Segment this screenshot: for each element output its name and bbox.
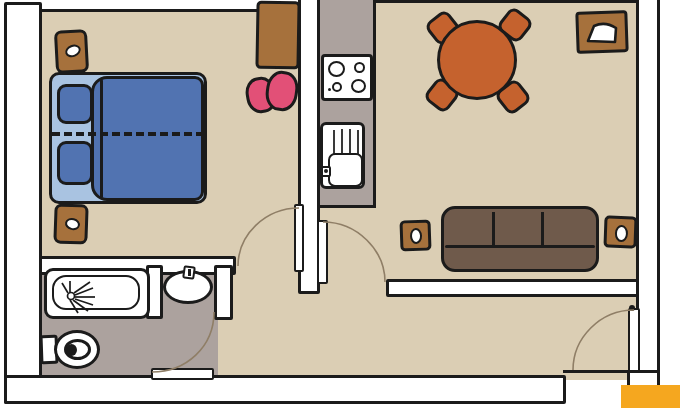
living-hall-wall xyxy=(386,279,640,297)
dresser xyxy=(255,1,300,70)
side-table-right xyxy=(603,215,637,248)
drainer-line xyxy=(349,129,351,156)
bed-pillow-top xyxy=(57,84,93,124)
bed-center-dashed-line xyxy=(52,132,204,136)
bathtub-inner-rim xyxy=(52,275,140,310)
outer-wall-left xyxy=(4,2,42,404)
bed-pillow-bottom xyxy=(57,141,93,185)
sofa xyxy=(441,206,599,272)
nightstand-lamp-icon xyxy=(64,216,81,231)
bedroom-door-leaf xyxy=(294,204,304,272)
bed-blanket-fold xyxy=(100,79,103,198)
floor-plan xyxy=(0,0,680,408)
kitchen-sink-unit xyxy=(320,122,365,189)
faucet-dot xyxy=(324,169,328,173)
lamp-icon xyxy=(410,228,423,244)
drainer-line xyxy=(341,129,343,156)
hall-living-door-leaf xyxy=(317,220,328,284)
sink-basin xyxy=(328,153,363,187)
drainer-line xyxy=(357,130,359,156)
toilet-bowl-shadow xyxy=(66,344,77,356)
stove xyxy=(321,54,373,101)
dining-top-edge xyxy=(376,0,638,3)
entry-door-leaf xyxy=(628,308,640,372)
basin-faucet-tick xyxy=(188,269,191,276)
nightstand-top xyxy=(54,29,89,74)
sofa-cushion-line xyxy=(492,212,495,246)
toilet-bowl xyxy=(54,330,100,369)
lamp-icon xyxy=(615,225,629,242)
nightstand-lamp-icon xyxy=(63,42,82,59)
pet-bowl-mat xyxy=(575,10,628,54)
outer-wall-bottom xyxy=(4,375,566,404)
bathroom-right-wall xyxy=(214,265,233,320)
burner-icon xyxy=(328,61,345,77)
burner-icon xyxy=(351,79,366,93)
entry-door-hinge-dot xyxy=(629,305,635,311)
sofa-seat-line xyxy=(445,245,595,248)
nightstand-bottom xyxy=(53,203,88,244)
dining-table xyxy=(437,20,517,100)
brand-corner-mark xyxy=(621,385,680,408)
burner-dot xyxy=(328,88,331,91)
bed-blanket xyxy=(91,76,204,201)
sofa-cushion-line xyxy=(541,212,544,246)
burner-icon xyxy=(332,82,342,92)
entry-threshold-edge xyxy=(563,370,629,373)
bathtub xyxy=(44,268,150,319)
side-table-left xyxy=(399,219,431,251)
bathroom-door-leaf xyxy=(151,368,214,380)
burner-icon xyxy=(354,62,365,73)
